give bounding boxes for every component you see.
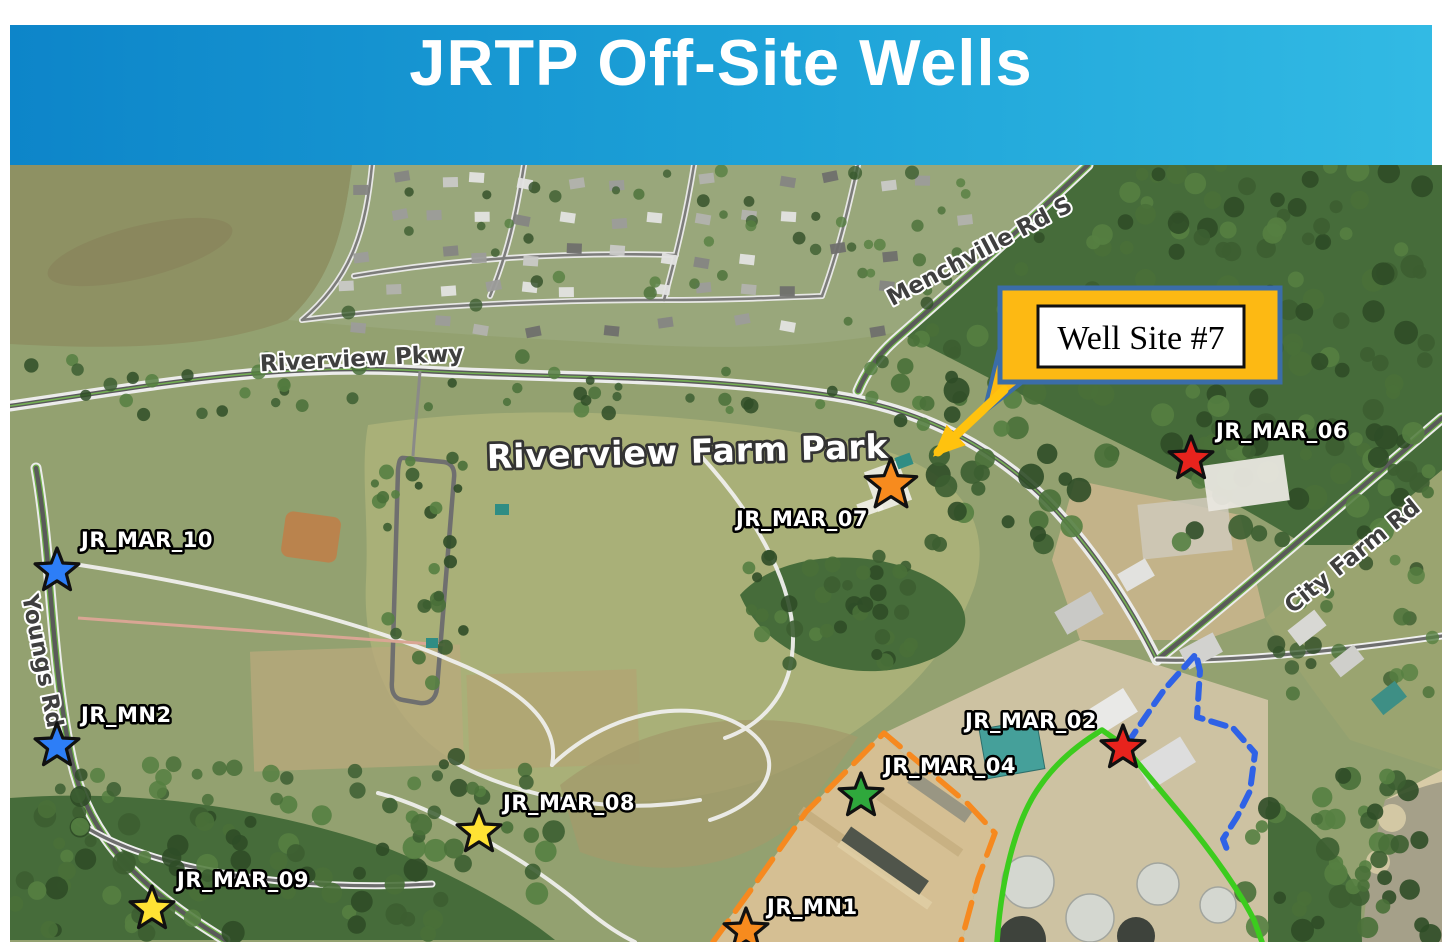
- well-label-JR_MN2: JR_MN2: [79, 703, 172, 727]
- callout-label: Well Site #7: [1057, 320, 1224, 357]
- well-label-JR_MAR_07: JR_MAR_07: [734, 507, 868, 531]
- well-label-JR_MAR_08: JR_MAR_08: [501, 791, 635, 815]
- well-label-JR_MAR_04: JR_MAR_04: [882, 754, 1016, 778]
- well-label-JR_MAR_06: JR_MAR_06: [1214, 419, 1348, 443]
- well-label-JR_MN1: JR_MN1: [765, 895, 858, 919]
- title-banner: JRTP Off-Site Wells: [10, 25, 1432, 165]
- aerial-map: Riverview Farm Park Riverview PkwyMenchv…: [10, 165, 1442, 942]
- well-label-JR_MAR_09: JR_MAR_09: [175, 868, 309, 892]
- well-label-JR_MAR_02: JR_MAR_02: [963, 709, 1097, 733]
- well-label-JR_MAR_10: JR_MAR_10: [79, 528, 213, 552]
- page-title: JRTP Off-Site Wells: [10, 25, 1432, 165]
